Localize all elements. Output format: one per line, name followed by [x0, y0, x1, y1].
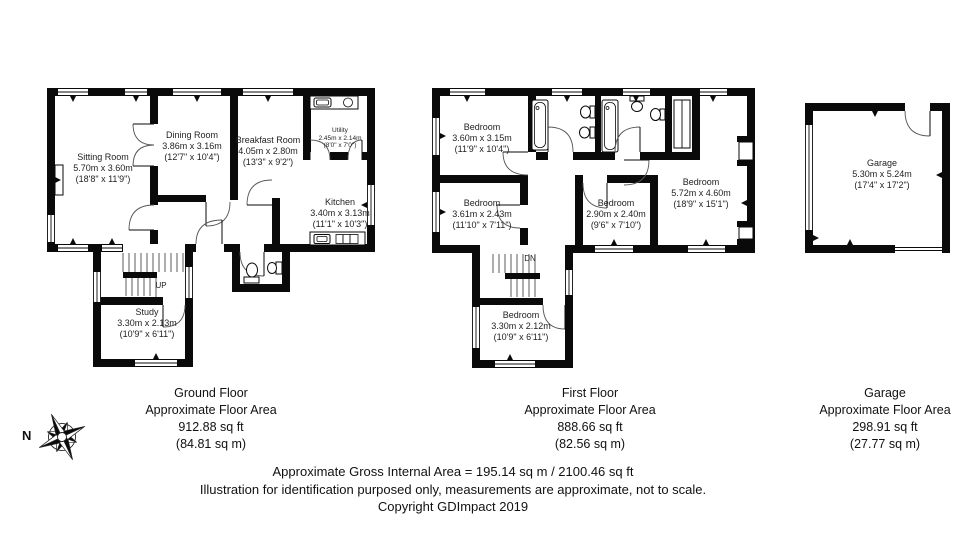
bathroom-fixtures: [580, 96, 666, 138]
room-dims-metric: 3.30m x 2.13m: [87, 318, 207, 329]
room-name: Bedroom: [461, 310, 581, 321]
caption-area-ft: 888.66 sq ft: [465, 419, 715, 436]
copyright-text: Copyright GDImpact 2019: [103, 498, 803, 516]
room-label-garage: Garage 5.30m x 5.24m (17'4" x 17'2"): [822, 158, 942, 191]
caption-area-ft: 912.88 sq ft: [86, 419, 336, 436]
room-dims-imperial: (8'0" x 7'0"): [305, 142, 375, 150]
staircase-up: [123, 253, 183, 297]
room-dims-imperial: (18'9" x 15'1"): [641, 199, 761, 210]
room-label-bedroom-4: Bedroom 5.72m x 4.60m (18'9" x 15'1"): [641, 177, 761, 210]
ground-floor-caption: Ground Floor Approximate Floor Area 912.…: [86, 385, 336, 453]
room-dims-metric: 5.72m x 4.60m: [641, 188, 761, 199]
room-label-bedroom-1: Bedroom 3.60m x 3.15m (11'9" x 10'4"): [422, 122, 542, 155]
room-dims-imperial: (13'3" x 9'2"): [206, 157, 330, 168]
room-dims-metric: 5.70m x 3.60m: [43, 163, 163, 174]
north-label: N: [22, 428, 31, 443]
room-name: Utility: [305, 127, 375, 135]
caption-area-ft: 298.91 sq ft: [760, 419, 980, 436]
caption-area-m: (84.81 sq m): [86, 436, 336, 453]
room-name: Bedroom: [641, 177, 761, 188]
garage-caption: Garage Approximate Floor Area 298.91 sq …: [760, 385, 980, 453]
utility-counter: [310, 96, 358, 109]
disclaimer-text: Illustration for identification purposed…: [103, 481, 803, 499]
caption-title: Ground Floor: [86, 385, 336, 402]
room-name: Kitchen: [280, 197, 400, 208]
room-dims-metric: 5.30m x 5.24m: [822, 169, 942, 180]
room-dims-metric: 3.30m x 2.12m: [461, 321, 581, 332]
caption-title: First Floor: [465, 385, 715, 402]
caption-area-m: (27.77 sq m): [760, 436, 980, 453]
room-name: Study: [87, 307, 207, 318]
room-label-utility: Utility 2.45m x 2.14m (8'0" x 7'0"): [305, 127, 375, 150]
room-dims-imperial: (10'9" x 6'11"): [87, 329, 207, 340]
room-dims-imperial: (18'8" x 11'9"): [43, 174, 163, 185]
room-name: Garage: [822, 158, 942, 169]
garage-openings: [905, 103, 930, 111]
gross-internal-area: Approximate Gross Internal Area = 195.14…: [103, 463, 803, 481]
room-dims-metric: 2.90m x 2.40m: [556, 209, 676, 220]
toilet-icon: [247, 263, 258, 277]
wc-fixtures: [244, 262, 282, 283]
room-name: Bedroom: [422, 198, 542, 209]
stairs-down-label: DN: [516, 254, 544, 263]
room-label-bedroom-5: Bedroom 3.30m x 2.12m (10'9" x 6'11"): [461, 310, 581, 343]
room-label-study: Study 3.30m x 2.13m (10'9" x 6'11"): [87, 307, 207, 340]
first-floor-caption: First Floor Approximate Floor Area 888.6…: [465, 385, 715, 453]
caption-subtitle: Approximate Floor Area: [86, 402, 336, 419]
floorplan-canvas: N Sitting Room 5.70m x 3.60m (18'8" x 11…: [0, 0, 980, 555]
room-dims-imperial: (11'10" x 7'11"): [422, 220, 542, 231]
toilet-icon: [590, 127, 595, 138]
room-dims-metric: 2.45m x 2.14m: [305, 135, 375, 143]
room-dims-metric: 3.60m x 3.15m: [422, 133, 542, 144]
room-dims-imperial: (9'6" x 7'10"): [556, 220, 676, 231]
caption-title: Garage: [760, 385, 980, 402]
footer-disclaimer: Approximate Gross Internal Area = 195.14…: [103, 463, 803, 516]
room-dims-imperial: (10'9" x 6'11"): [461, 332, 581, 343]
room-label-bedroom-2: Bedroom 3.61m x 2.43m (11'10" x 7'11"): [422, 198, 542, 231]
room-dims-imperial: (11'1" x 10'3"): [280, 219, 400, 230]
room-dims-imperial: (11'9" x 10'4"): [422, 144, 542, 155]
closet: [674, 100, 690, 148]
kitchen-counter: [310, 232, 365, 245]
room-name: Bedroom: [422, 122, 542, 133]
room-label-kitchen: Kitchen 3.40m x 3.13m (11'1" x 10'3"): [280, 197, 400, 230]
caption-subtitle: Approximate Floor Area: [760, 402, 980, 419]
room-dims-metric: 3.61m x 2.43m: [422, 209, 542, 220]
room-dims-metric: 3.40m x 3.13m: [280, 208, 400, 219]
caption-area-m: (82.56 sq m): [465, 436, 715, 453]
caption-subtitle: Approximate Floor Area: [465, 402, 715, 419]
stairs-up-label: UP: [147, 281, 175, 290]
room-dims-imperial: (17'4" x 17'2"): [822, 180, 942, 191]
door-arcs: [905, 111, 930, 136]
